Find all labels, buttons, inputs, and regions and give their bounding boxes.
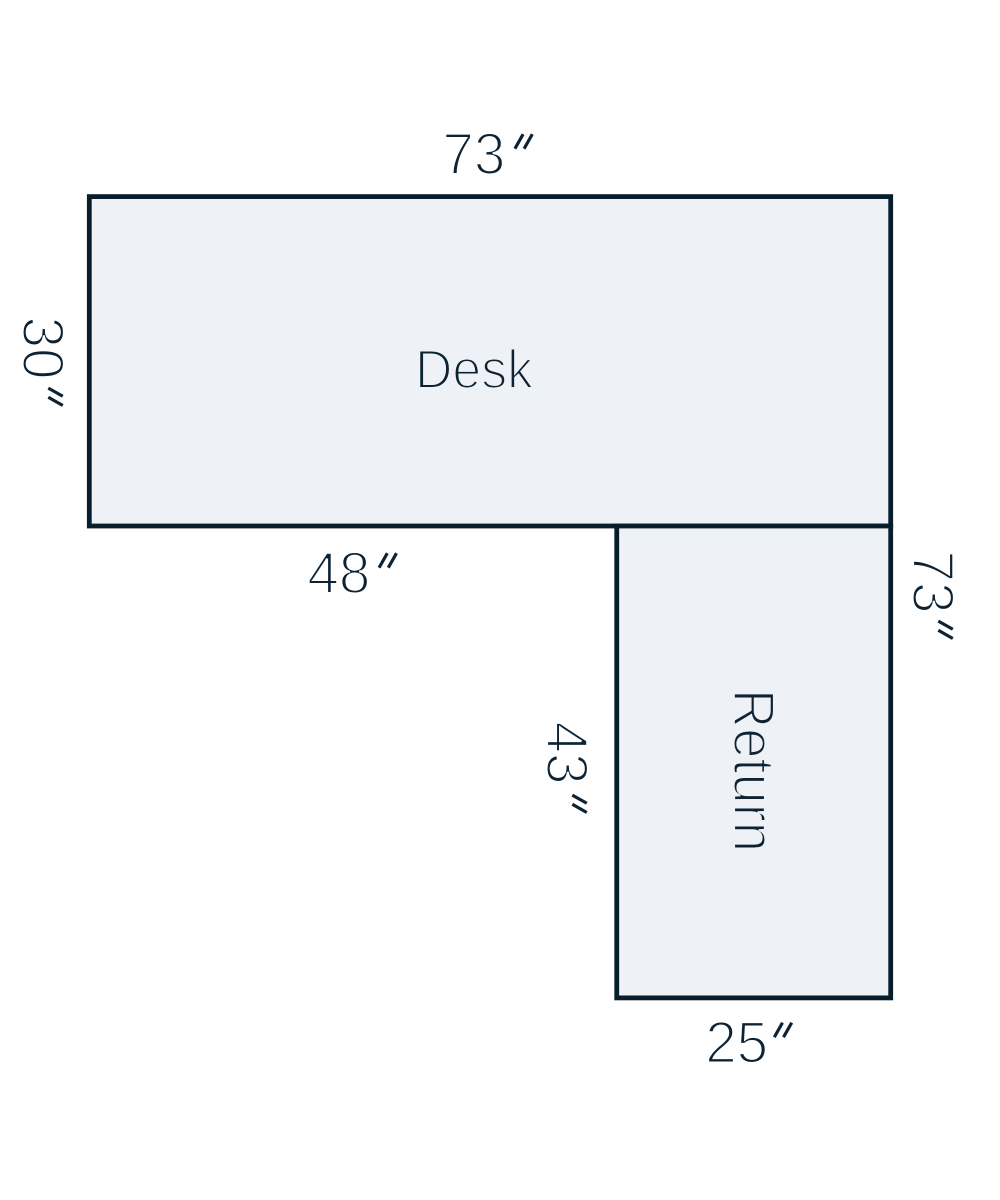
svg-text:Desk: Desk (415, 338, 533, 400)
svg-text:Return: Return (721, 689, 786, 852)
svg-text:25: 25 (705, 1011, 768, 1076)
svg-text:73: 73 (900, 551, 965, 614)
svg-text:30: 30 (10, 317, 75, 380)
svg-text:73: 73 (442, 122, 505, 187)
svg-text:48: 48 (307, 541, 370, 606)
svg-text:43: 43 (534, 722, 599, 785)
